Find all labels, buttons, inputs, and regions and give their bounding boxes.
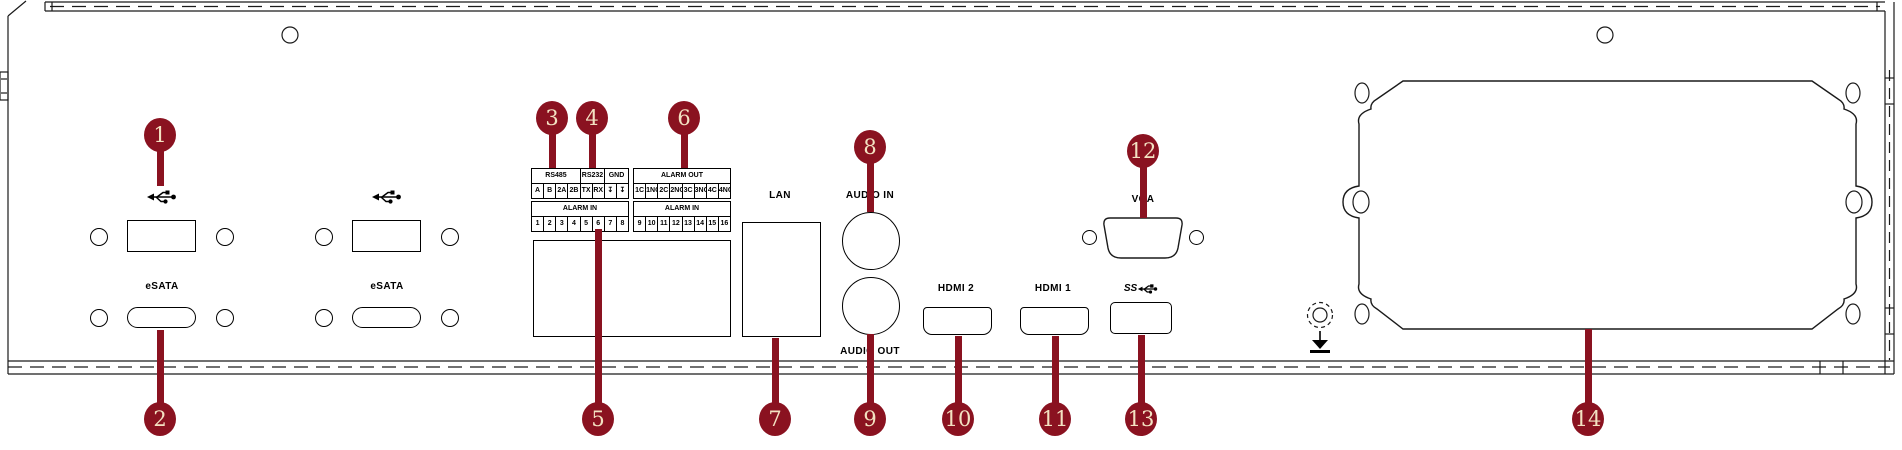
callout-number: 11 (1042, 409, 1069, 430)
screw-hole (1597, 27, 1613, 43)
terminal-pin: 4C (706, 184, 718, 198)
callout-13: 13 (1125, 402, 1157, 436)
callout-stem (955, 336, 962, 403)
terminal-pin: 2C (657, 184, 669, 198)
callout-stem (157, 150, 164, 186)
esata-port (352, 307, 421, 328)
callout-4: 4 (576, 101, 608, 135)
callout-2: 2 (144, 402, 176, 436)
terminal-pin: A (532, 184, 543, 198)
screw-hole (216, 309, 234, 327)
terminal-pin: 2 (543, 217, 555, 231)
audio-out-jack (842, 277, 900, 335)
hdmi2-port (923, 307, 992, 335)
callout-stem (1585, 329, 1592, 403)
terminal-pin: 1C (634, 184, 645, 198)
power-plate-screws (1353, 83, 1862, 324)
usb-icon (147, 191, 176, 204)
serial-terminal-block: RS485 RS232 GND AB2A2BTXRX↧↧ (531, 168, 629, 199)
callout-stem (1052, 336, 1059, 403)
rs232-header: RS232 (580, 169, 604, 183)
esata-port (127, 307, 196, 328)
screw-hole (90, 309, 108, 327)
terminal-pin: B (543, 184, 555, 198)
terminal-pins: AB2A2BTXRX↧↧ (532, 183, 628, 198)
terminal-pin: 11 (657, 217, 669, 231)
screw-hole (315, 228, 333, 246)
hdmi2-label: HDMI 2 (938, 283, 974, 295)
lan-label: LAN (769, 190, 791, 202)
alarm-out-header: ALARM OUT (634, 169, 730, 183)
callout-number: 13 (1128, 409, 1155, 430)
terminal-pin: 2B (567, 184, 579, 198)
callout-9: 9 (854, 402, 886, 436)
gnd-header: GND (604, 169, 628, 183)
screw-hole (282, 27, 298, 43)
callout-number: 1 (153, 125, 166, 146)
terminal-pin: 3 (555, 217, 567, 231)
terminal-pin: 3NO (694, 184, 706, 198)
alarm-in-block-1: ALARM IN 12345678 (531, 201, 629, 232)
usb-port (352, 220, 421, 252)
callout-number: 8 (863, 137, 876, 158)
chassis-drawing (0, 0, 1902, 450)
hdmi1-port (1020, 307, 1089, 335)
callout-12: 12 (1127, 134, 1159, 168)
callout-10: 10 (942, 402, 974, 436)
callout-number: 4 (585, 108, 598, 129)
usb3-icon (1138, 283, 1158, 295)
screw-hole (1189, 230, 1204, 245)
terminal-pin: 9 (634, 217, 645, 231)
terminal-pin: ↧ (616, 184, 628, 198)
callout-number: 6 (677, 108, 690, 129)
callout-8: 8 (854, 130, 886, 164)
terminal-pin: 15 (706, 217, 718, 231)
alarm-in-header: ALARM IN (532, 202, 628, 216)
terminal-pin: RX (592, 184, 604, 198)
lan-port (742, 222, 821, 337)
terminal-pin: 2NO (669, 184, 681, 198)
alarm-out-block: ALARM OUT 1C1NO2C2NO3C3NO4C4NO (633, 168, 731, 199)
callout-number: 10 (945, 409, 972, 430)
terminal-pin: 5 (580, 217, 592, 231)
terminal-socket (533, 240, 731, 337)
screw-hole (1082, 230, 1097, 245)
callout-stem (1140, 166, 1147, 218)
callout-6: 6 (668, 101, 700, 135)
callout-stem (681, 133, 688, 168)
terminal-pin: 7 (604, 217, 616, 231)
rs485-header: RS485 (532, 169, 580, 183)
terminal-pin: TX (580, 184, 592, 198)
callout-number: 14 (1575, 409, 1602, 430)
callout-number: 2 (153, 409, 166, 430)
callout-stem (867, 334, 874, 403)
terminal-pin: 12 (669, 217, 681, 231)
esata-label: eSATA (145, 281, 178, 293)
screw-hole (441, 228, 459, 246)
vga-connector-outline (1104, 218, 1182, 258)
terminal-pins: 12345678 (532, 216, 628, 231)
alarm-in-block-2: ALARM IN 910111213141516 (633, 201, 731, 232)
terminal-pins: 910111213141516 (634, 216, 730, 231)
ground-screw-icon (1308, 303, 1333, 328)
callout-1: 1 (144, 118, 176, 152)
screw-hole (90, 228, 108, 246)
ss-text: SS (1124, 283, 1137, 295)
usb3-port (1110, 302, 1172, 334)
screw-hole (441, 309, 459, 327)
terminal-pins: 1C1NO2C2NO3C3NO4C4NO (634, 183, 730, 198)
hdmi1-label: HDMI 1 (1035, 283, 1071, 295)
callout-number: 9 (863, 409, 876, 430)
screw-hole (216, 228, 234, 246)
power-plate-outline (1343, 81, 1872, 329)
callout-11: 11 (1039, 402, 1071, 436)
callout-3: 3 (536, 101, 568, 135)
callout-7: 7 (759, 402, 791, 436)
alarm-in-header: ALARM IN (634, 202, 730, 216)
terminal-pin: 1NO (645, 184, 657, 198)
usb3-ss-label: SS (1124, 283, 1158, 295)
terminal-pin: 10 (645, 217, 657, 231)
callout-stem (1138, 335, 1145, 403)
terminal-pin: 2A (555, 184, 567, 198)
terminal-pin: 1 (532, 217, 543, 231)
terminal-pin: 16 (718, 217, 730, 231)
terminal-pin: ↧ (604, 184, 616, 198)
callout-stem (772, 338, 779, 403)
screw-hole (315, 309, 333, 327)
callout-number: 7 (768, 409, 781, 430)
callout-stem (157, 330, 164, 403)
esata-label: eSATA (370, 281, 403, 293)
usb-port (127, 220, 196, 252)
callout-number: 3 (545, 108, 558, 129)
rear-panel-diagram: eSATA eSATA RS485 RS232 GND AB2A2BTXRX↧↧… (0, 0, 1902, 450)
usb-icon (372, 191, 401, 204)
terminal-pin: 8 (616, 217, 628, 231)
ground-symbol-icon (1310, 331, 1330, 352)
terminal-pin: 14 (694, 217, 706, 231)
callout-number: 12 (1130, 141, 1157, 162)
callout-stem (595, 229, 602, 403)
terminal-headers: RS485 RS232 GND (532, 169, 628, 183)
terminal-pin: 4NO (718, 184, 730, 198)
callout-stem (549, 133, 556, 168)
callout-stem (589, 133, 596, 168)
terminal-pin: 4 (567, 217, 579, 231)
terminal-pin: 3C (682, 184, 694, 198)
audio-in-jack (842, 212, 900, 270)
callout-number: 5 (591, 409, 604, 430)
terminal-pin: 13 (682, 217, 694, 231)
callout-stem (867, 162, 874, 212)
callout-14: 14 (1572, 402, 1604, 436)
callout-5: 5 (582, 402, 614, 436)
